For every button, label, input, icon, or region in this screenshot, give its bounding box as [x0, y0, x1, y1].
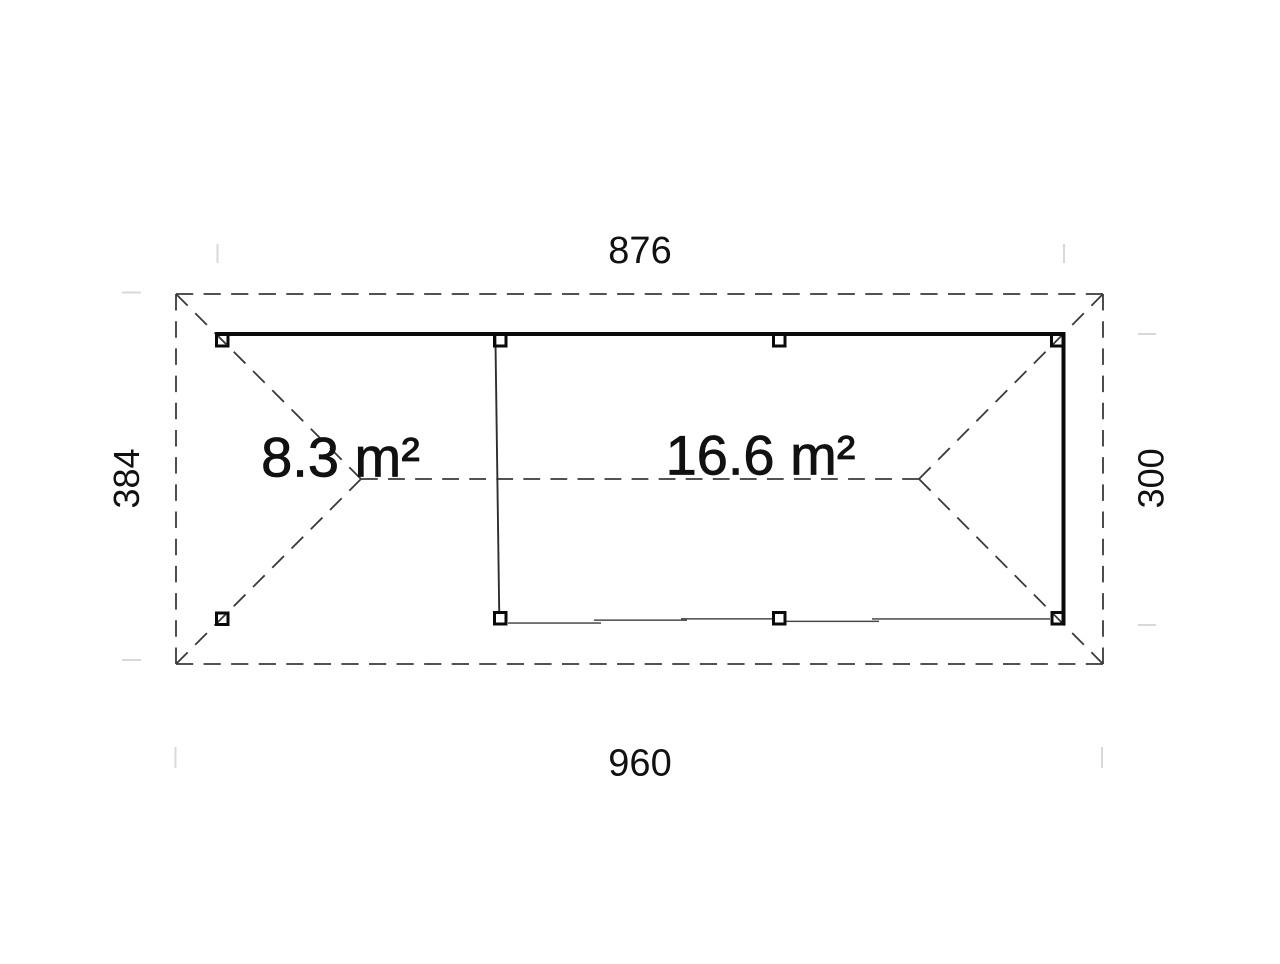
- svg-text:384: 384: [106, 448, 147, 508]
- svg-text:960: 960: [608, 743, 671, 785]
- svg-text:8.3 m²: 8.3 m²: [261, 426, 420, 489]
- svg-text:16.6 m²: 16.6 m²: [666, 424, 856, 487]
- svg-text:300: 300: [1130, 448, 1171, 508]
- svg-text:876: 876: [608, 230, 671, 272]
